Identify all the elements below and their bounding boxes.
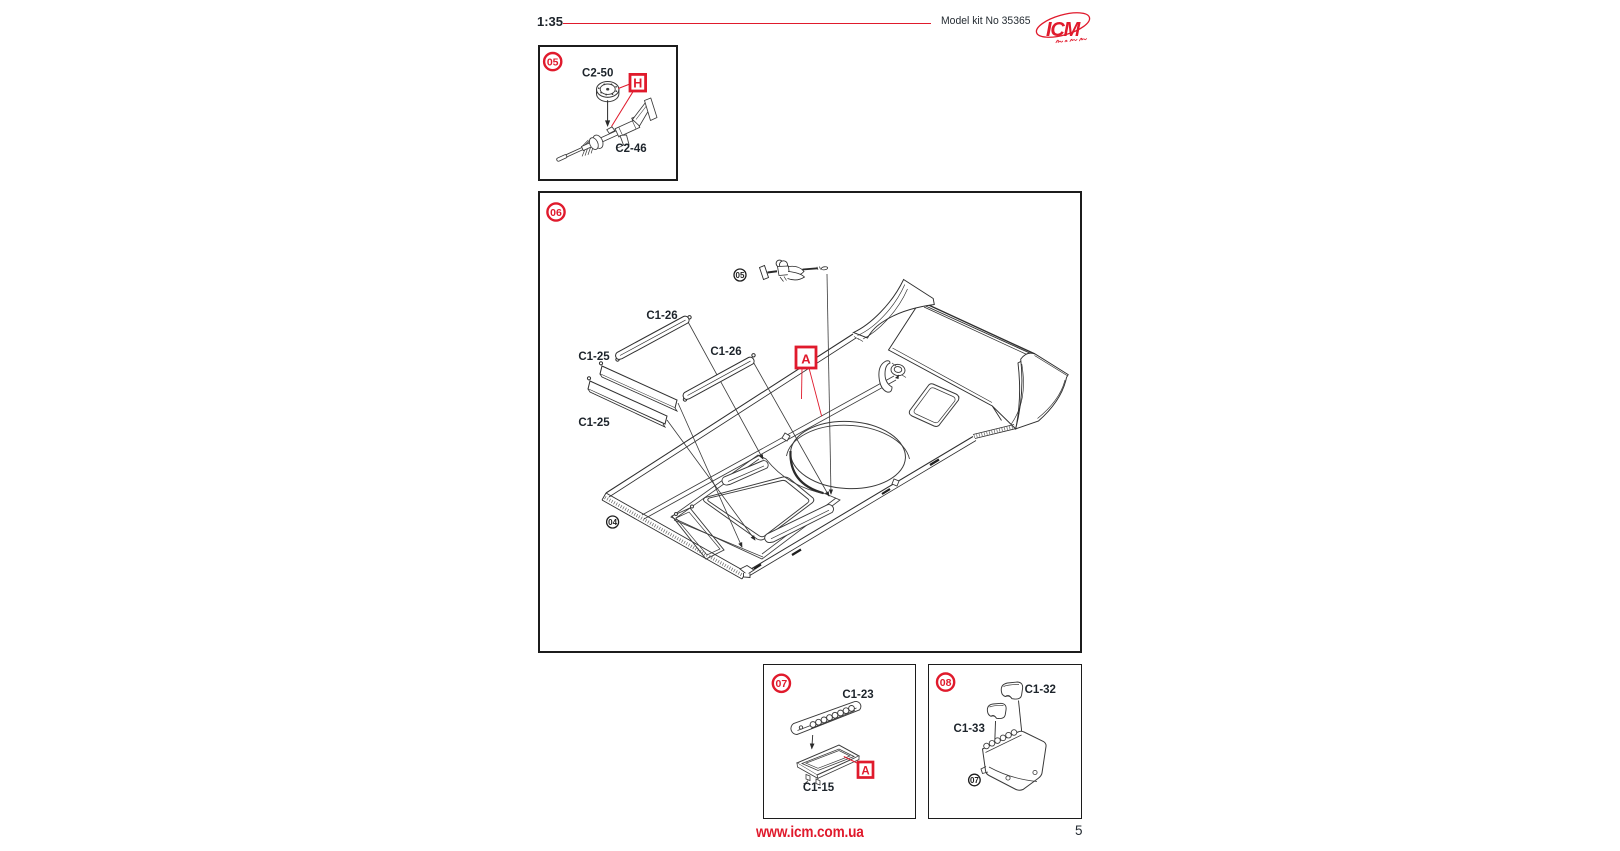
svg-text:04: 04 bbox=[608, 518, 617, 527]
svg-text:C1-32: C1-32 bbox=[1025, 684, 1056, 696]
svg-text:ICM: ICM bbox=[1046, 19, 1082, 41]
svg-text:C1-25: C1-25 bbox=[578, 417, 610, 429]
svg-text:07: 07 bbox=[970, 776, 979, 785]
svg-text:06: 06 bbox=[550, 207, 562, 219]
svg-text:C2-50: C2-50 bbox=[582, 67, 613, 79]
svg-text:C2-46: C2-46 bbox=[615, 143, 646, 155]
svg-text:C1-26: C1-26 bbox=[710, 346, 741, 358]
svg-text:C1-23: C1-23 bbox=[842, 689, 873, 701]
svg-text:08: 08 bbox=[940, 677, 952, 689]
svg-text:A: A bbox=[861, 765, 869, 777]
svg-text:C1-25: C1-25 bbox=[578, 351, 610, 363]
svg-text:C1-33: C1-33 bbox=[954, 723, 985, 735]
svg-text:05: 05 bbox=[736, 271, 745, 280]
svg-text:A: A bbox=[801, 352, 811, 367]
svg-text:H: H bbox=[633, 77, 642, 91]
svg-text:C1-26: C1-26 bbox=[646, 310, 677, 322]
svg-text:C1-15: C1-15 bbox=[803, 782, 835, 794]
svg-text:07: 07 bbox=[776, 678, 788, 690]
svg-text:05: 05 bbox=[547, 56, 559, 68]
